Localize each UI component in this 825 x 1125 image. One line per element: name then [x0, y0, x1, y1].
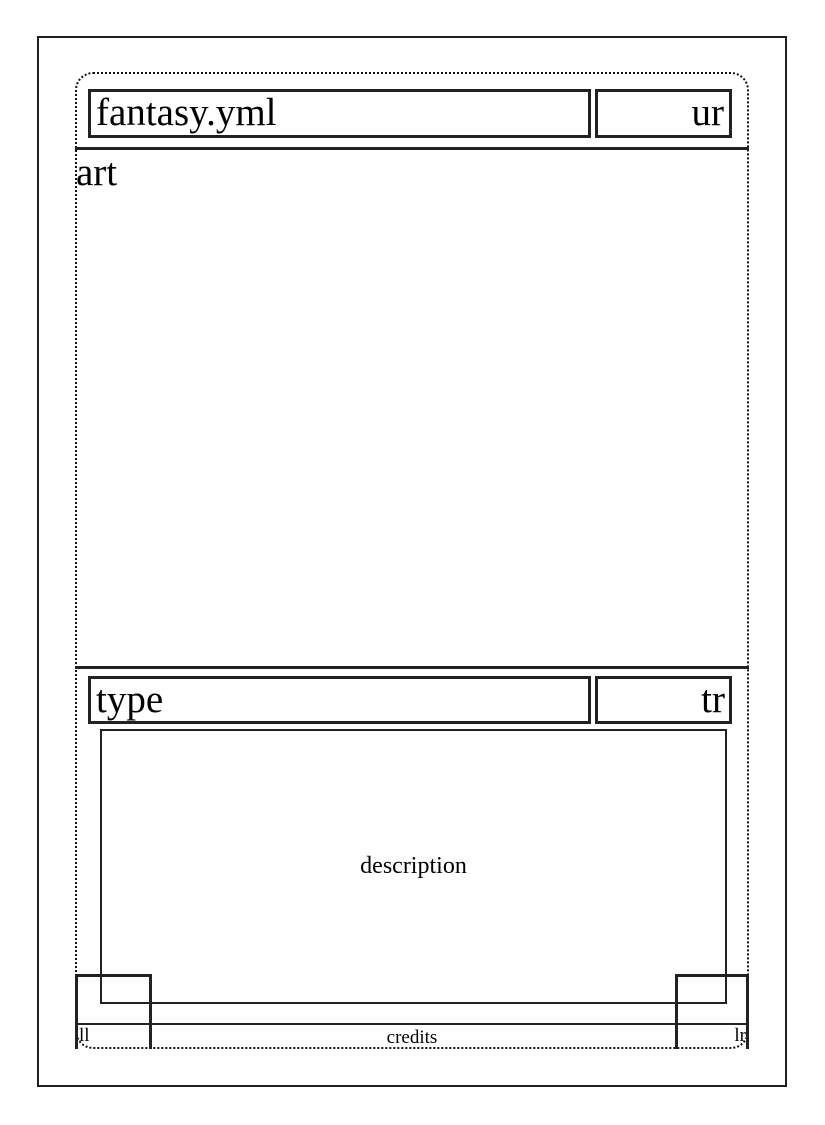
type-text: type — [96, 678, 163, 721]
type-box: type — [88, 676, 591, 724]
upper-right-box: ur — [595, 89, 732, 138]
description-label: description — [360, 853, 467, 880]
credits-bar: credits — [75, 1023, 749, 1049]
art-region: art — [75, 147, 749, 669]
title-text: fantasy.yml — [96, 91, 277, 134]
type-right-text: tr — [701, 678, 725, 721]
art-label: art — [76, 151, 117, 195]
title-box: fantasy.yml — [88, 89, 591, 138]
description-box: description — [100, 729, 727, 1004]
type-right-box: tr — [595, 676, 732, 724]
card-template-preview: art fantasy.yml ur type tr description l… — [0, 0, 825, 1125]
upper-right-text: ur — [692, 91, 725, 134]
credits-label: credits — [387, 1027, 438, 1048]
